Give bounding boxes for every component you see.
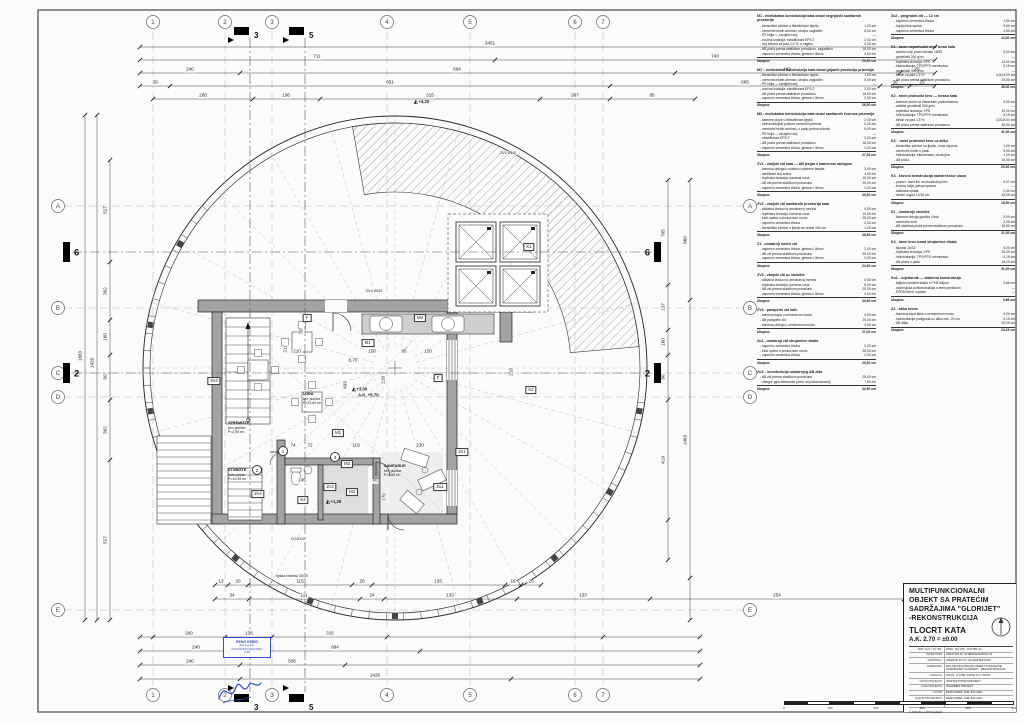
grid-bubble-7: 7 <box>597 16 610 29</box>
spec-section-Zu1': Zu1' - konstrukcija unutarnjeg AB zida- … <box>757 370 876 391</box>
svg-text:1: 1 <box>151 692 155 699</box>
grid-bubble-6: 6 <box>569 16 582 29</box>
spec-section-K2: K2 - ravni prohodni krov — terasa kata- … <box>891 94 1015 134</box>
spec-section-M1: M1 - međukatna konstrukcija kata iznad n… <box>757 14 876 63</box>
spec-section-ZV1: ZV1 - vanjski zid kata — AB jezgra s kam… <box>757 162 876 197</box>
material-spec-column-1: M1 - međukatna konstrukcija kata iznad n… <box>757 14 876 396</box>
grid-bubble-B: B <box>52 302 65 315</box>
signature <box>215 675 265 709</box>
grid-bubble-E: E <box>52 604 65 617</box>
spec-section-ZV2: ZV2 - vanjski zid sanitarnih prostorija … <box>757 202 876 237</box>
scale-tick-label: 0 <box>783 706 785 710</box>
grid-bubble-3: 3 <box>266 16 279 29</box>
title-block-row: GRAĐEVINAMULTIFUNKCIONALNI OBJEKT S PRAT… <box>909 664 1013 673</box>
svg-text:6: 6 <box>573 19 577 26</box>
scale-segment <box>853 701 876 705</box>
scale-tick-label: 400 <box>965 706 970 710</box>
spec-section-K2': K2' - ravni prohodni krov uz atiku- kera… <box>891 139 1015 169</box>
spec-section-M3: M3 - međukatna konstrukcija kata iznad s… <box>757 112 876 156</box>
grid-bubble-7: 7 <box>597 689 610 702</box>
spec-section-K1: K1 - ravni neprohodni krov iznad kata- z… <box>891 45 1015 89</box>
svg-text:6: 6 <box>573 692 577 699</box>
svg-text:6: 6 <box>74 248 79 259</box>
spec-section-K4: K4 - ravni krov iznad strojarnice dizala… <box>891 240 1015 270</box>
svg-text:E: E <box>748 607 752 614</box>
svg-text:3: 3 <box>270 19 274 26</box>
spec-section-ZV4: ZV4 - parapetni zid lođe- kamena kapa u … <box>757 308 876 334</box>
grid-bubble-A: A <box>52 200 65 213</box>
svg-text:5: 5 <box>468 19 472 26</box>
grid-bubble-D: D <box>52 391 65 404</box>
scale-segment <box>922 701 945 705</box>
spec-section-S1: S1 - unutarnje stubište- kamena obloga g… <box>891 210 1015 236</box>
grid-bubble-B: B <box>744 302 757 315</box>
svg-text:2: 2 <box>74 369 79 380</box>
grid-bubble-3: 3 <box>266 689 279 702</box>
title-block: MULTIFUNKCIONALNIOBJEKT SA PRATEĆIMSADRŽ… <box>903 583 1016 712</box>
svg-text:4: 4 <box>385 692 389 699</box>
material-spec-column-2: Zu2 - pregradni zid — 12 cm- vapneno cem… <box>891 14 1015 337</box>
svg-text:1: 1 <box>151 19 155 26</box>
spec-section-ZV3: ZV3 - vanjski zid uz stubište- silikatna… <box>757 273 876 303</box>
scale-segment <box>945 701 968 705</box>
svg-text:6: 6 <box>645 248 650 259</box>
svg-text:D: D <box>748 394 753 401</box>
svg-text:5: 5 <box>468 692 472 699</box>
spec-section-Zu2: Zu2 - pregradni zid — 12 cm- vapneno cem… <box>891 14 1015 40</box>
svg-text:C: C <box>748 370 753 377</box>
svg-text:7: 7 <box>601 692 605 699</box>
grid-bubble-C: C <box>744 367 757 380</box>
svg-text:2: 2 <box>645 369 650 380</box>
grid-bubble-1: 1 <box>147 689 160 702</box>
stamp-number: A-63 <box>225 651 269 655</box>
scale-tick-label: 200 <box>873 706 878 710</box>
svg-text:B: B <box>56 305 60 312</box>
grid-bubble-1: 1 <box>147 16 160 29</box>
grid-bubble-6: 6 <box>569 689 582 702</box>
title-block-table: ZOP. GUO / T.D. BR.25/20 · MJ 1:50 · LIS… <box>909 646 1013 708</box>
scale-segment <box>784 701 807 705</box>
scale-segment <box>899 701 922 705</box>
svg-text:5: 5 <box>309 703 314 712</box>
scale-segment <box>991 701 1014 705</box>
north-arrow-icon <box>988 614 1014 640</box>
spec-section-A1: A1 - atika krova- kamena kapa atike u ce… <box>891 307 1015 333</box>
spec-section-M1': M1' - međukatna konstrukcija kata iznad … <box>757 68 876 108</box>
grid-bubble-2: 2 <box>219 16 232 29</box>
scale-segment <box>807 701 830 705</box>
scale-segment <box>876 701 899 705</box>
svg-text:B: B <box>748 305 752 312</box>
svg-text:2: 2 <box>223 19 227 26</box>
svg-text:E: E <box>56 607 60 614</box>
svg-text:4: 4 <box>385 19 389 26</box>
spec-section-Ku1: Ku1 - svjetlarnik — staklena konstrukcij… <box>891 276 1015 302</box>
spec-section-Z1: Z1 - unutarnji nosivi zid- vapneno cemen… <box>757 242 876 268</box>
spec-section-Zu1: Zu1 - unutarnji zid strojarnice dizala- … <box>757 339 876 365</box>
plan-geometry <box>157 214 548 530</box>
scale-segment <box>830 701 853 705</box>
svg-text:D: D <box>56 394 61 401</box>
grid-bubble-4: 4 <box>381 689 394 702</box>
svg-text:3: 3 <box>270 692 274 699</box>
graphic-scale-bar: 0100200300400500 <box>784 701 1014 712</box>
drawing-sheet: 11223344556677AABBCCDDEE 33556622 345171… <box>0 0 1024 724</box>
grid-bubble-D: D <box>744 391 757 404</box>
grid-bubble-A: A <box>744 200 757 213</box>
scale-segment <box>968 701 991 705</box>
scale-tick-label: 500 <box>1011 706 1016 710</box>
grid-bubble-4: 4 <box>381 16 394 29</box>
svg-text:5: 5 <box>309 31 314 40</box>
scale-tick-label: 300 <box>919 706 924 710</box>
grid-bubble-E: E <box>744 604 757 617</box>
architect-stamp: RENO KEBIĆ dipl.ing.arh. OVLAŠTENI ARHIT… <box>223 637 271 658</box>
svg-text:3: 3 <box>254 31 259 40</box>
grid-bubble-C: C <box>52 367 65 380</box>
grid-bubble-5: 5 <box>464 16 477 29</box>
spec-section-K3: K3 - krovna konstrukcija nadstrešnice ul… <box>891 174 1015 204</box>
svg-text:C: C <box>56 370 61 377</box>
svg-text:7: 7 <box>601 19 605 26</box>
grid-bubble-5: 5 <box>464 689 477 702</box>
scale-tick-label: 100 <box>827 706 832 710</box>
